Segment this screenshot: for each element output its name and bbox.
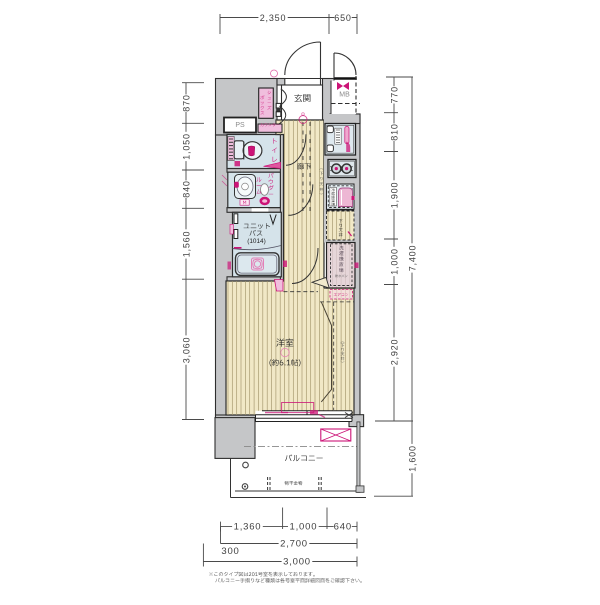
svg-text:PS: PS <box>235 122 245 129</box>
svg-text:1,050: 1,050 <box>181 133 191 160</box>
svg-text:300: 300 <box>221 546 239 557</box>
svg-text:650: 650 <box>334 13 351 23</box>
svg-text:1,000: 1,000 <box>389 248 399 275</box>
svg-text:1,000: 1,000 <box>290 521 318 532</box>
svg-text:7,400: 7,400 <box>407 245 417 272</box>
svg-text:870: 870 <box>181 94 191 111</box>
svg-text:(1014): (1014) <box>247 238 265 245</box>
svg-text:2,920: 2,920 <box>389 339 399 366</box>
svg-text:1,600: 1,600 <box>407 445 417 472</box>
svg-text:2,700: 2,700 <box>280 538 308 549</box>
svg-text:770: 770 <box>389 86 399 103</box>
svg-text:3,000: 3,000 <box>283 556 311 567</box>
svg-text:1,900: 1,900 <box>389 182 399 209</box>
svg-text:840: 840 <box>181 180 191 197</box>
svg-text:2,350: 2,350 <box>260 13 287 23</box>
svg-text:1,560: 1,560 <box>181 231 191 258</box>
svg-text:810: 810 <box>389 123 399 140</box>
svg-text:MB: MB <box>339 92 350 99</box>
svg-text:3,060: 3,060 <box>181 337 191 364</box>
svg-text:1,360: 1,360 <box>234 521 262 532</box>
svg-text:640: 640 <box>334 521 352 532</box>
